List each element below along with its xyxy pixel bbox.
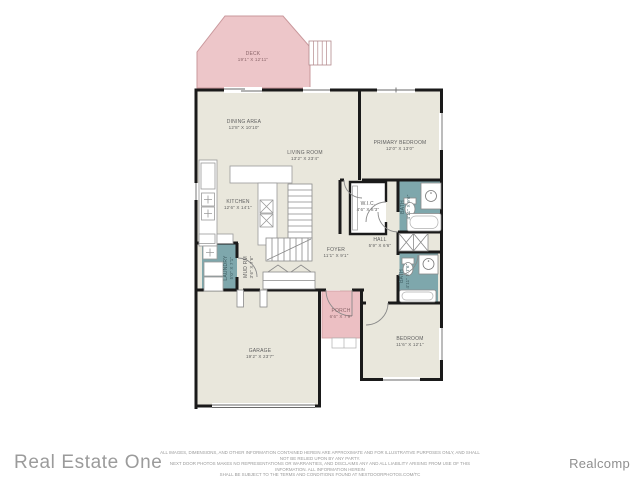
- mls-logo: Realcomp: [569, 456, 630, 471]
- room-label-bath-2: BATH4'11" X 7'6": [399, 264, 411, 289]
- disclaimer-line-1: ALL IMAGES, DIMENSIONS, AND OTHER INFORM…: [160, 450, 480, 461]
- room-label-wic: W.I.C.4'6" X 8'3": [357, 201, 380, 213]
- room-label-dining: DINING AREA12'8" X 10'10": [227, 119, 261, 131]
- room-label-porch: PORCH6'6" X 7'9": [330, 308, 353, 320]
- room-label-primary-bedroom: PRIMARY BEDROOM12'0" X 13'0": [374, 140, 427, 152]
- room-label-laundry: LAUNDRY5'0" X 7'1": [223, 255, 235, 280]
- room-label-bedroom: BEDROOM11'6" X 12'1": [396, 336, 424, 348]
- room-label-deck: DECK19'1" X 12'11": [238, 51, 268, 63]
- room-label-bath-1: BATH4'11" X 9'6": [400, 195, 412, 220]
- room-label-hall: HALL5'9" X 6'6": [369, 237, 392, 249]
- disclaimer-line-3: SHALL BE SUBJECT TO THE TERMS AND CONDIT…: [160, 472, 480, 478]
- room-label-mud-room: MUD RM3'6" X 7'6": [243, 256, 255, 279]
- room-label-living: LIVING ROOM13'2" X 23'4": [287, 150, 323, 162]
- room-label-kitchen: KITCHEN12'6" X 14'1": [224, 199, 252, 211]
- disclaimer-text: ALL IMAGES, DIMENSIONS, AND OTHER INFORM…: [160, 450, 480, 478]
- room-label-foyer: FOYER11'1" X 9'1": [324, 247, 349, 259]
- room-label-garage: GARAGE19'2" X 23'7": [246, 348, 274, 360]
- disclaimer-line-2: NEXT DOOR PHOTOS MAKES NO REPRESENTATION…: [160, 461, 480, 472]
- floor-plan-page: DECK19'1" X 12'11" DINING AREA12'8" X 10…: [0, 0, 640, 480]
- floor-plan-drawing: [0, 0, 640, 480]
- agency-logo: Real Estate One: [14, 452, 162, 474]
- linen-closet-box: [399, 234, 428, 252]
